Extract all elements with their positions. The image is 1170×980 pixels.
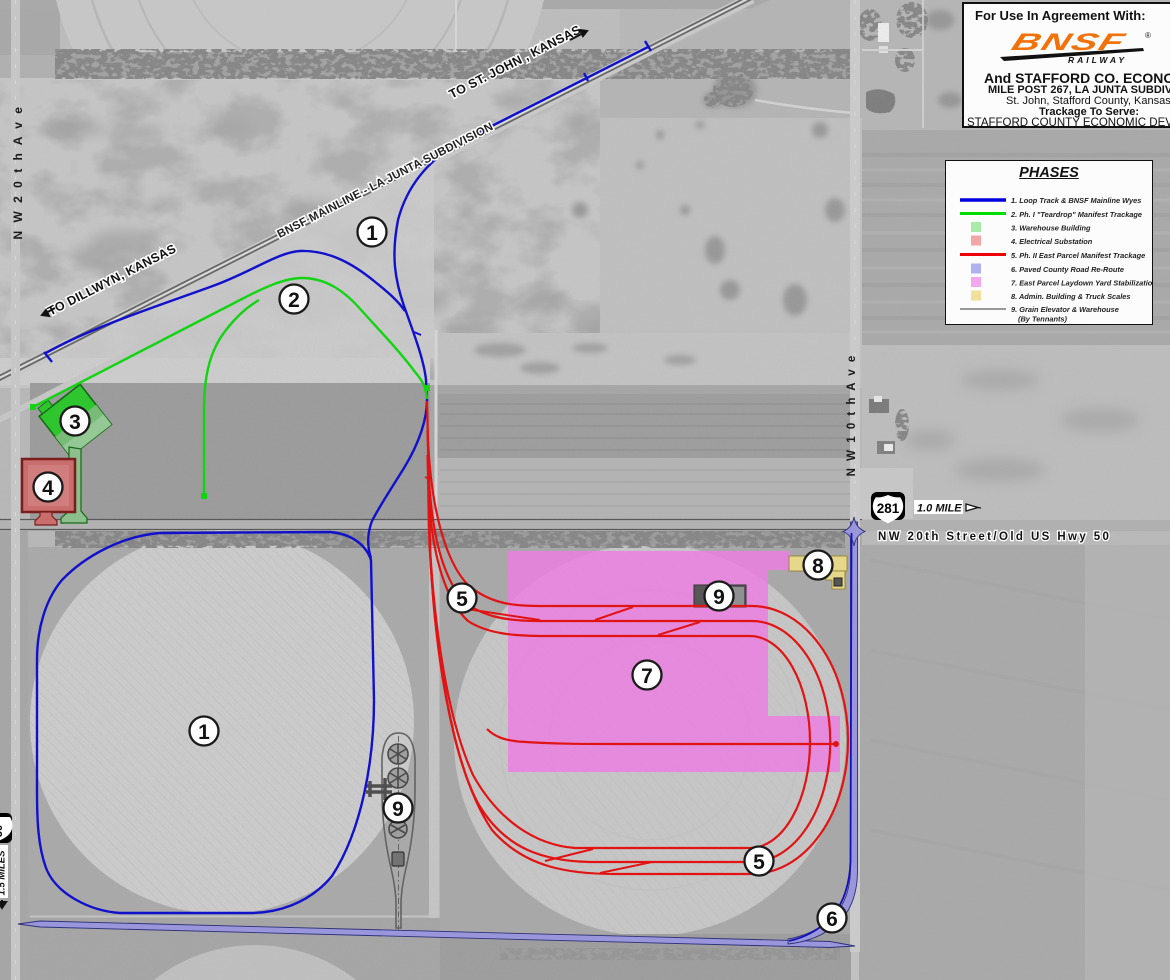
svg-text:7: 7 xyxy=(641,665,653,688)
svg-text:3. Warehouse Building: 3. Warehouse Building xyxy=(1011,224,1091,233)
svg-text:5: 5 xyxy=(753,851,765,874)
svg-text:2: 2 xyxy=(288,289,300,312)
svg-text:1. Loop Track & BNSF Mainline: 1. Loop Track & BNSF Mainline Wyes xyxy=(1011,196,1141,205)
svg-text:2. Ph. I "Teardrop" Manifest T: 2. Ph. I "Teardrop" Manifest Trackage xyxy=(1010,210,1142,219)
svg-text:N W 2 0 t h A v e: N W 2 0 t h A v e xyxy=(11,105,25,240)
svg-text:8: 8 xyxy=(812,555,824,578)
svg-text:5: 5 xyxy=(456,588,468,611)
svg-text:5. Ph. II East Parcel Manifest: 5. Ph. II East Parcel Manifest Trackage xyxy=(1011,251,1145,260)
svg-text:9: 9 xyxy=(392,798,404,821)
svg-text:7. East Parcel Laydown Yard St: 7. East Parcel Laydown Yard Stabilizatio… xyxy=(1011,279,1152,288)
svg-text:4. Electrical Substation: 4. Electrical Substation xyxy=(1010,237,1093,246)
svg-text:NW 20th Street/Old US Hwy 50: NW 20th Street/Old US Hwy 50 xyxy=(878,531,1111,543)
svg-text:6: 6 xyxy=(826,908,838,931)
svg-text:1.5 MILES: 1.5 MILES xyxy=(0,850,8,896)
svg-text:(By Tennants): (By Tennants) xyxy=(1018,315,1068,324)
svg-text:3: 3 xyxy=(69,411,81,434)
svg-text:4: 4 xyxy=(42,477,54,500)
svg-text:9. Grain Elevator & Warehouse: 9. Grain Elevator & Warehouse xyxy=(1011,305,1119,314)
svg-text:1: 1 xyxy=(198,721,210,744)
svg-text:6. Paved County Road Re-Route: 6. Paved County Road Re-Route xyxy=(1011,265,1124,274)
svg-text:N W 1 0 t h A v e: N W 1 0 t h A v e xyxy=(846,354,858,477)
svg-text:281: 281 xyxy=(877,501,900,516)
svg-text:1: 1 xyxy=(366,222,378,245)
svg-text:RAILWAY: RAILWAY xyxy=(1068,55,1127,65)
svg-text:8. Admin. Building & Truck Sca: 8. Admin. Building & Truck Scales xyxy=(1011,292,1131,301)
svg-text:50: 50 xyxy=(0,825,5,837)
svg-text:1.0 MILE: 1.0 MILE xyxy=(917,503,962,515)
svg-text:®: ® xyxy=(1145,31,1151,40)
svg-text:9: 9 xyxy=(713,586,725,609)
